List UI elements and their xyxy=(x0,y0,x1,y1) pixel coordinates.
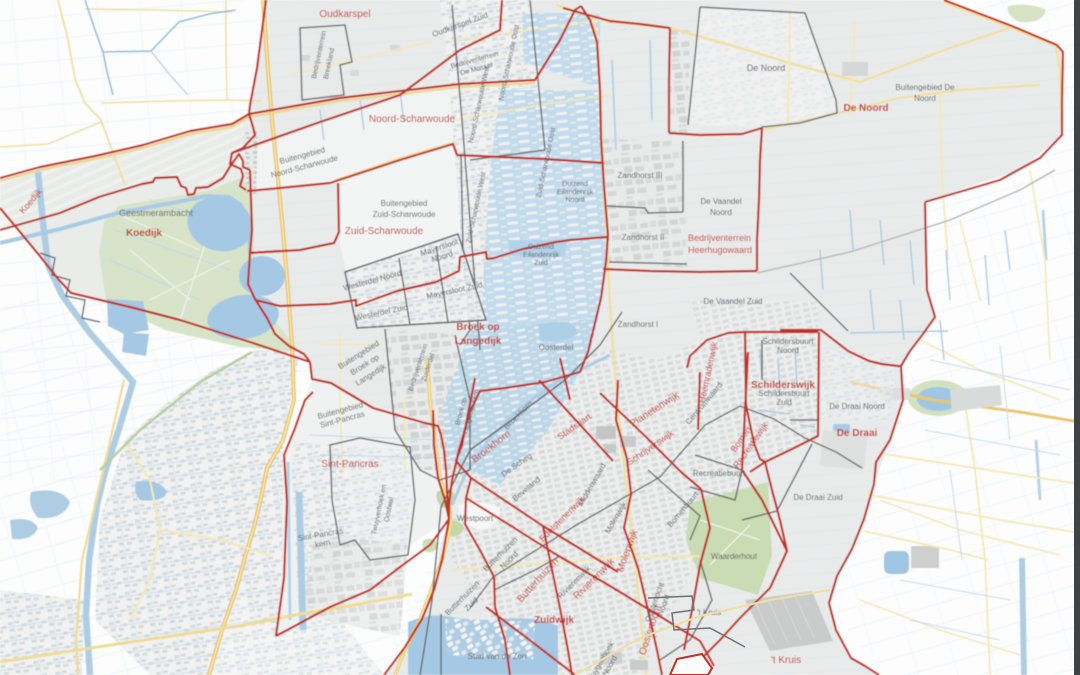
svg-text:Buitengebied: Buitengebied xyxy=(381,199,428,208)
svg-text:Duizend: Duizend xyxy=(528,244,554,251)
svg-text:Noord: Noord xyxy=(914,94,936,103)
svg-text:Noord: Noord xyxy=(710,208,732,217)
svg-text:Zuid: Zuid xyxy=(534,260,548,267)
svg-text:Koedijk: Koedijk xyxy=(126,228,163,239)
svg-text:Duizend: Duizend xyxy=(562,181,588,188)
svg-text:Zandhorst I: Zandhorst I xyxy=(618,320,658,329)
svg-text:Langedijk: Langedijk xyxy=(455,336,502,347)
svg-text:De Noord: De Noord xyxy=(844,103,889,114)
svg-text:Zuidwijk: Zuidwijk xyxy=(534,615,574,626)
svg-text:Geestmerambacht: Geestmerambacht xyxy=(119,208,194,218)
svg-text:Oudkarspel: Oudkarspel xyxy=(319,9,370,20)
svg-text:De Draai: De Draai xyxy=(837,428,878,439)
svg-text:Noord: Noord xyxy=(777,346,799,355)
svg-text:Oosterdel: Oosterdel xyxy=(539,343,574,352)
svg-text:De Draai Noord: De Draai Noord xyxy=(829,402,885,411)
svg-text:De Noord: De Noord xyxy=(747,63,786,73)
svg-text:Schildersbuurt: Schildersbuurt xyxy=(762,337,814,346)
svg-text:Eilandenrijk: Eilandenrijk xyxy=(557,189,594,196)
svg-text:Noord-Scharwoude: Noord-Scharwoude xyxy=(369,114,456,125)
svg-text:Zuid-Scharwoude: Zuid-Scharwoude xyxy=(373,210,436,219)
svg-text:Eilandenrijk: Eilandenrijk xyxy=(523,252,560,259)
svg-text:Waarderhout: Waarderhout xyxy=(711,552,758,561)
svg-text:Heerhugowaard: Heerhugowaard xyxy=(688,245,752,255)
svg-text:Sint-Pancras: Sint-Pancras xyxy=(321,459,378,470)
svg-text:Zuid: Zuid xyxy=(776,398,792,407)
svg-text:Broek op: Broek op xyxy=(456,322,499,333)
svg-text:Buitengebied De: Buitengebied De xyxy=(895,83,955,92)
svg-text:De Draai Zuid: De Draai Zuid xyxy=(793,493,842,502)
svg-text:Stad van de Zon: Stad van de Zon xyxy=(468,652,527,661)
svg-text:Zandhorst II: Zandhorst II xyxy=(622,233,665,242)
svg-text:De Vaandel: De Vaandel xyxy=(700,197,741,206)
svg-text:Zandhorst III: Zandhorst III xyxy=(618,171,663,180)
svg-text:Westpoort: Westpoort xyxy=(457,514,494,523)
svg-text:'t Kruis: 't Kruis xyxy=(771,655,801,666)
svg-text:Zuid-Scharwoude: Zuid-Scharwoude xyxy=(345,226,424,237)
svg-text:Bedrijventerrein: Bedrijventerrein xyxy=(688,233,751,243)
svg-text:Schilderswijk: Schilderswijk xyxy=(751,380,815,391)
svg-text:De Vaandel Zuid: De Vaandel Zuid xyxy=(704,297,763,306)
svg-text:Noord: Noord xyxy=(565,197,584,204)
